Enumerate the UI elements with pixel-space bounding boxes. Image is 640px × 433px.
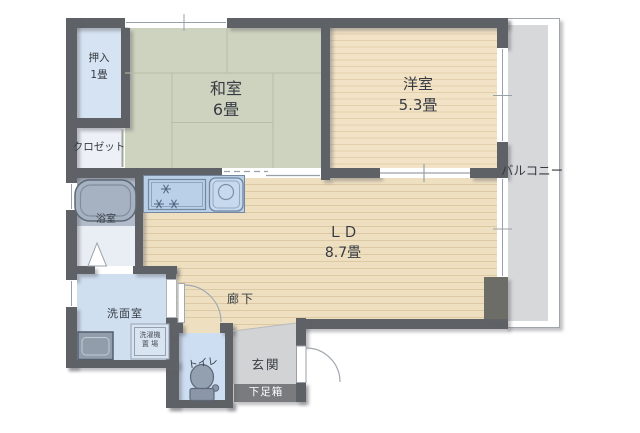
genkan-floor [233,322,296,384]
ld-label: ＬＤ8.7畳 [293,222,393,264]
shoebox-label: 下足箱 [234,386,298,399]
wall [77,266,95,274]
wall [227,18,508,28]
closet-label: クロゼット [59,141,139,154]
bathroom-floor-lower [77,226,135,266]
wall [66,360,179,368]
genkan-label: 玄関 [242,357,290,373]
wall [166,266,176,279]
washroom-label: 洗面室 [93,307,157,321]
wall [135,178,143,266]
window-band-top [125,18,227,27]
window-band-left-lower [66,280,77,307]
wall [168,323,183,333]
window-band-left-upper [66,183,77,210]
window-band-youshitsu-balcony [497,48,508,142]
wall [296,319,508,329]
washroom-doorway [166,279,177,318]
corridor-label: 廊下 [217,292,265,307]
sliding-door-band-youshitsu [380,168,470,178]
wall [77,118,121,128]
balcony-label: バルコニー [487,163,577,179]
youshitsu-label: 洋室5.3畳 [342,74,494,116]
laundry-label: 洗濯機置 場 [133,331,167,349]
wall [497,18,508,48]
floor-plan: 押入1畳 クロゼット 和室6畳 洋室5.3畳 ＬＤ8.7畳 バルコニー 浴室 洗… [0,0,640,433]
washitsu-label: 和室6畳 [150,78,302,120]
wall [66,18,77,183]
wall [66,210,77,280]
oshiire-label: 押入1畳 [75,50,123,84]
entrance-door-swing [297,346,341,383]
wall [321,18,330,180]
bathroom-label: 浴室 [82,214,130,227]
wall [330,168,380,178]
wall [66,307,77,368]
wall [168,400,233,408]
aircon-pillar [484,277,508,319]
toilet-doorway-floor [183,320,220,333]
kitchen-counter [143,175,245,213]
wall [296,318,306,346]
window-band-ld-balcony [497,178,508,277]
